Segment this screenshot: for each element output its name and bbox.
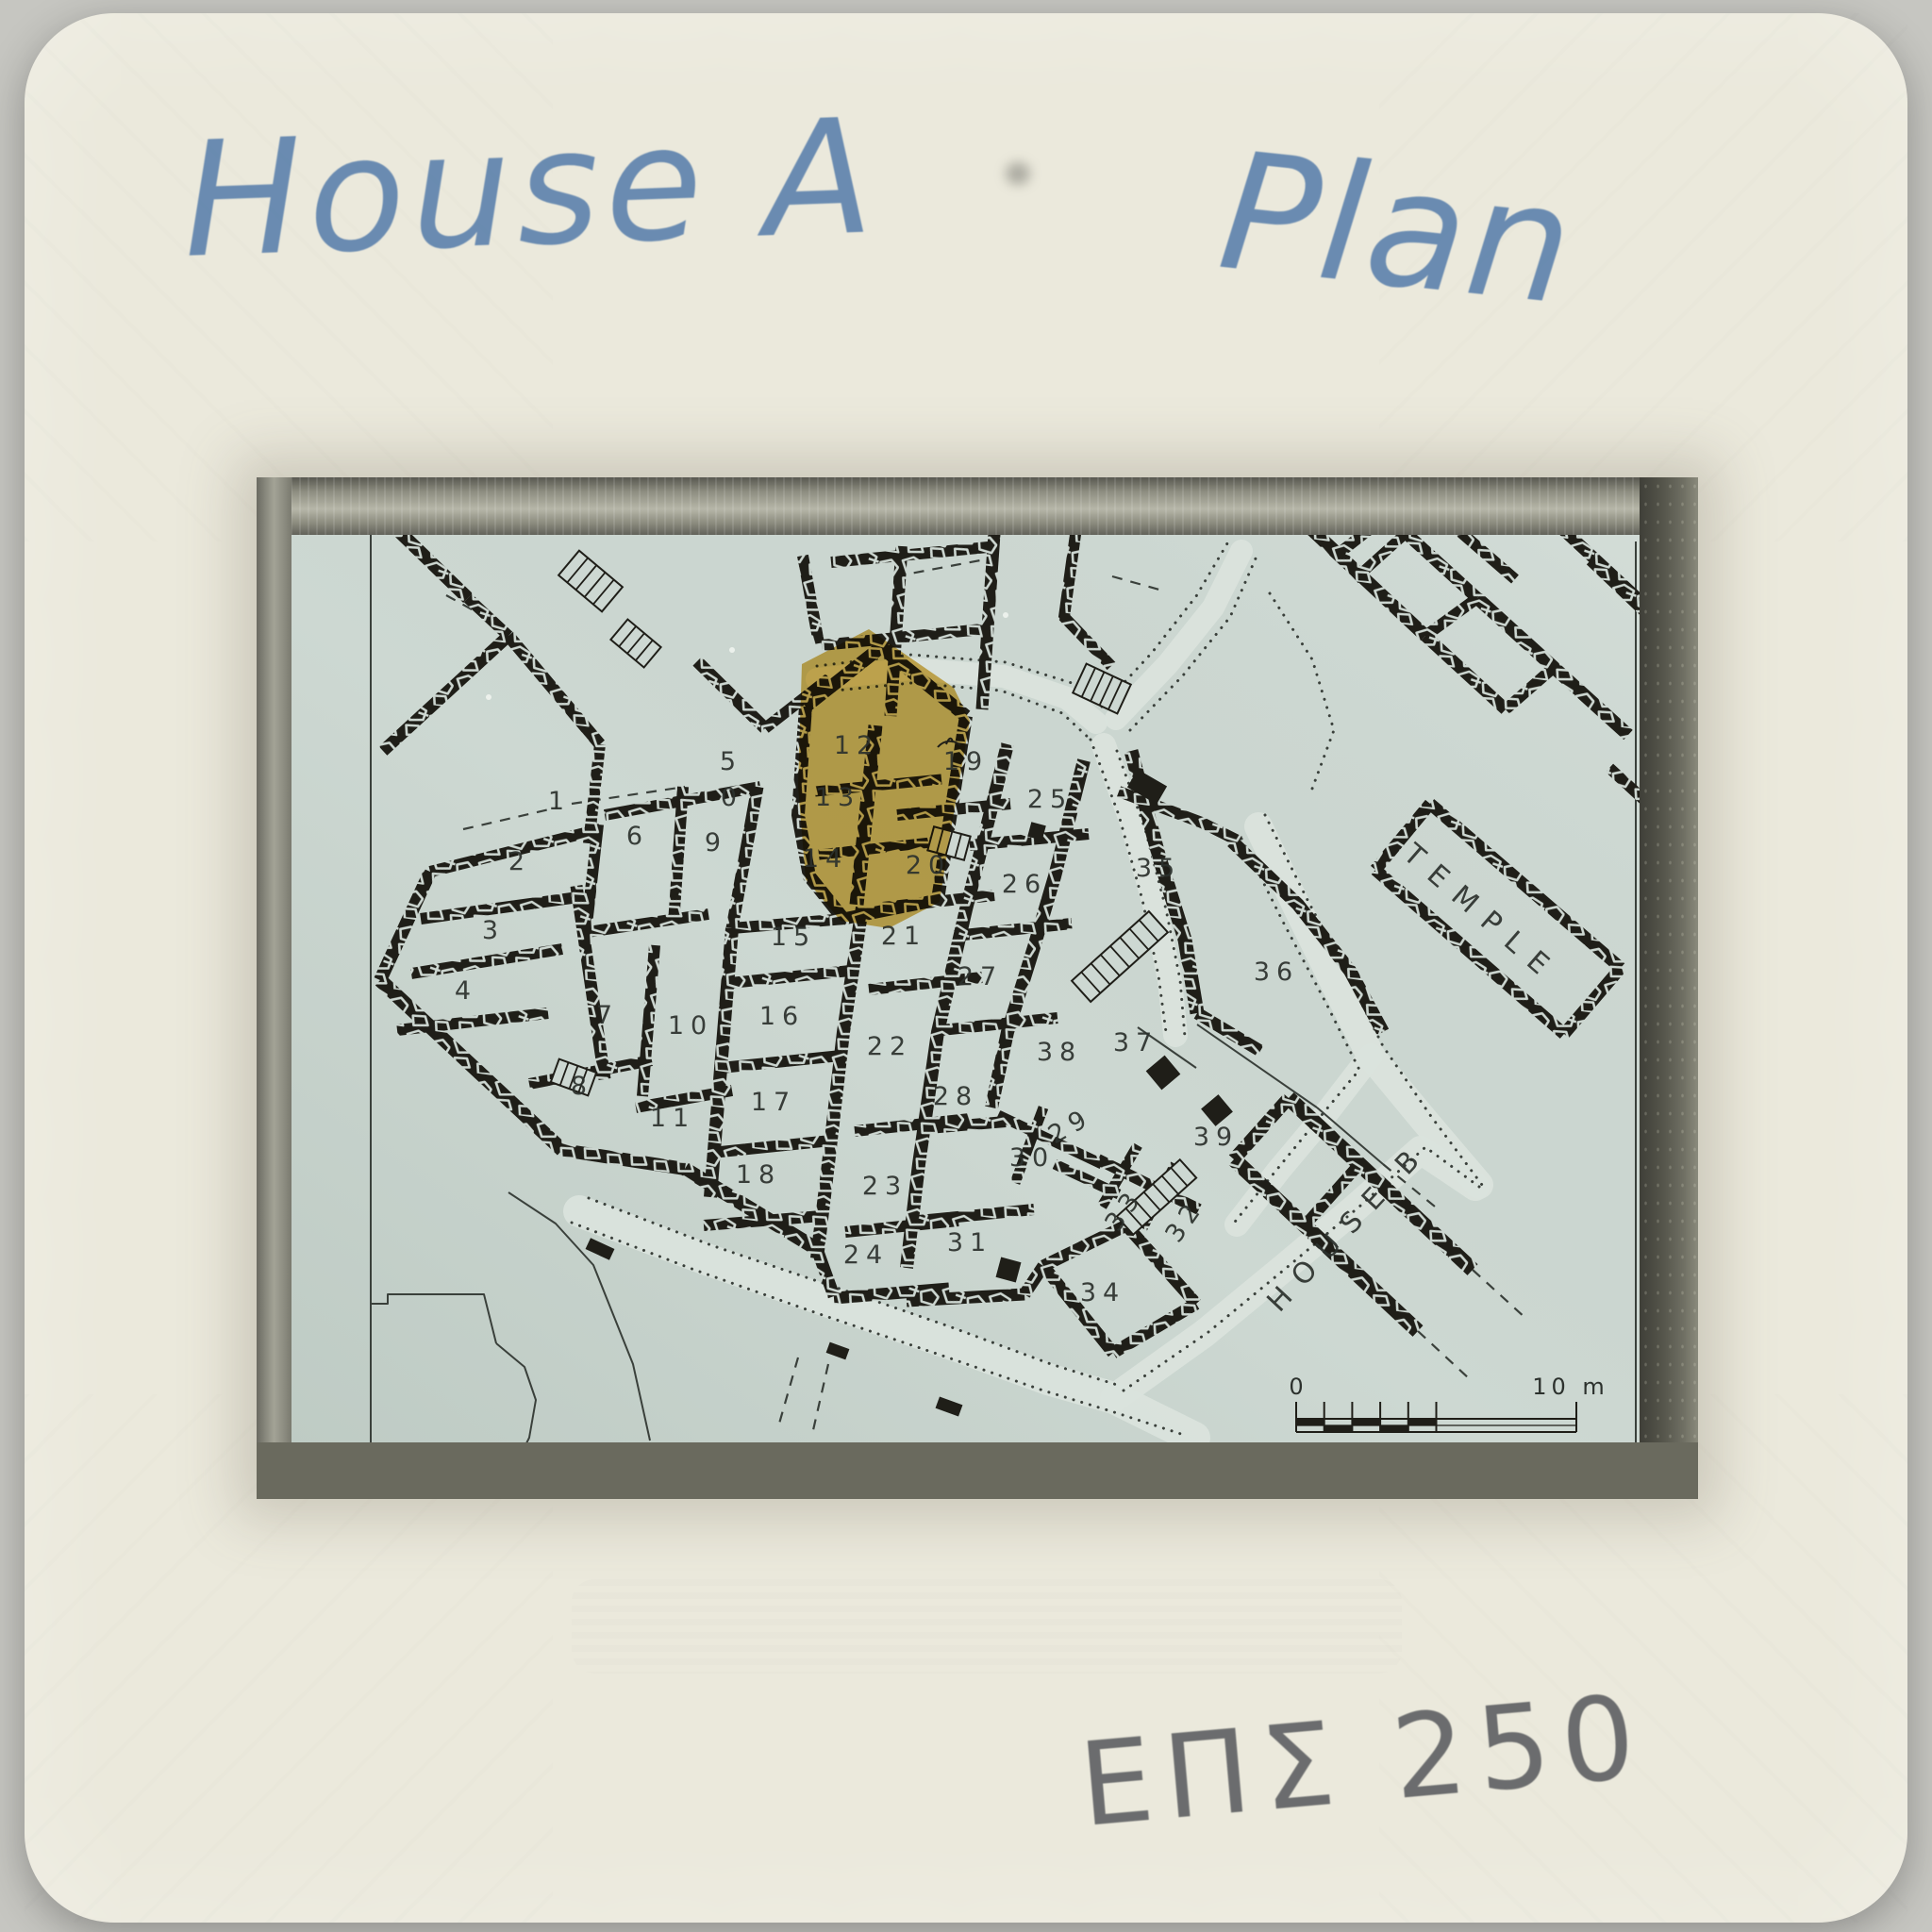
- svg-text:6: 6: [626, 822, 649, 851]
- slide-mount: House A Plan ΕΠΣ 250 0123456789101112131…: [25, 13, 1907, 1923]
- svg-text:36: 36: [1254, 958, 1299, 987]
- svg-text:14: 14: [803, 844, 848, 874]
- svg-text:11: 11: [650, 1104, 695, 1133]
- svg-text:3: 3: [482, 916, 505, 945]
- svg-text:19: 19: [943, 747, 989, 776]
- svg-text:38: 38: [1037, 1038, 1082, 1067]
- svg-text:31: 31: [947, 1228, 992, 1257]
- svg-text:17: 17: [751, 1088, 796, 1117]
- svg-text:34: 34: [1080, 1278, 1125, 1307]
- handwriting-house-a: House A: [180, 84, 881, 293]
- film-aperture: 0123456789101112131415161718192021222324…: [277, 535, 1681, 1442]
- svg-text:15: 15: [771, 923, 816, 952]
- svg-text:16: 16: [759, 1002, 805, 1031]
- metal-frame-bottom: [257, 1442, 1698, 1499]
- svg-text:2: 2: [508, 847, 531, 876]
- svg-text:9: 9: [705, 828, 727, 858]
- svg-text:37: 37: [1113, 1028, 1158, 1058]
- svg-text:26: 26: [1002, 870, 1047, 899]
- svg-text:39: 39: [1193, 1123, 1239, 1152]
- svg-text:5: 5: [720, 747, 742, 776]
- handwriting-plan: Plan: [1212, 116, 1583, 341]
- svg-text:28: 28: [933, 1082, 978, 1111]
- mount-ink-dot: [1006, 162, 1030, 185]
- svg-text:25: 25: [1027, 785, 1073, 814]
- mount-molding-ridge: [572, 1579, 1402, 1674]
- photo-of-slide: { "mount": { "handwriting_left": "House …: [0, 0, 1932, 1932]
- svg-text:10 m: 10 m: [1532, 1374, 1609, 1400]
- handwriting-catalog-code: ΕΠΣ 250: [1074, 1670, 1652, 1853]
- slide-window: 0123456789101112131415161718192021222324…: [257, 477, 1698, 1499]
- svg-text:27: 27: [958, 962, 1003, 991]
- svg-text:0: 0: [1289, 1374, 1303, 1400]
- site-plan-map: 0123456789101112131415161718192021222324…: [289, 535, 1681, 1442]
- metal-frame-top: [257, 477, 1698, 535]
- svg-text:12: 12: [834, 731, 879, 760]
- metal-frame-right: [1640, 477, 1698, 1499]
- svg-text:0: 0: [721, 783, 743, 812]
- svg-text:23: 23: [862, 1172, 908, 1201]
- svg-text:1: 1: [548, 787, 571, 816]
- metal-frame-left: [257, 477, 291, 1499]
- svg-text:24: 24: [843, 1241, 889, 1270]
- svg-text:22: 22: [867, 1032, 912, 1061]
- svg-text:7: 7: [596, 1001, 619, 1030]
- svg-text:8: 8: [571, 1072, 593, 1101]
- svg-text:13: 13: [815, 783, 860, 812]
- svg-text:35: 35: [1136, 854, 1181, 883]
- svg-text:30: 30: [1009, 1143, 1055, 1173]
- svg-text:18: 18: [736, 1160, 781, 1190]
- svg-text:21: 21: [881, 922, 926, 951]
- svg-text:10: 10: [668, 1011, 713, 1041]
- svg-text:4: 4: [455, 976, 477, 1006]
- svg-text:20: 20: [906, 851, 951, 880]
